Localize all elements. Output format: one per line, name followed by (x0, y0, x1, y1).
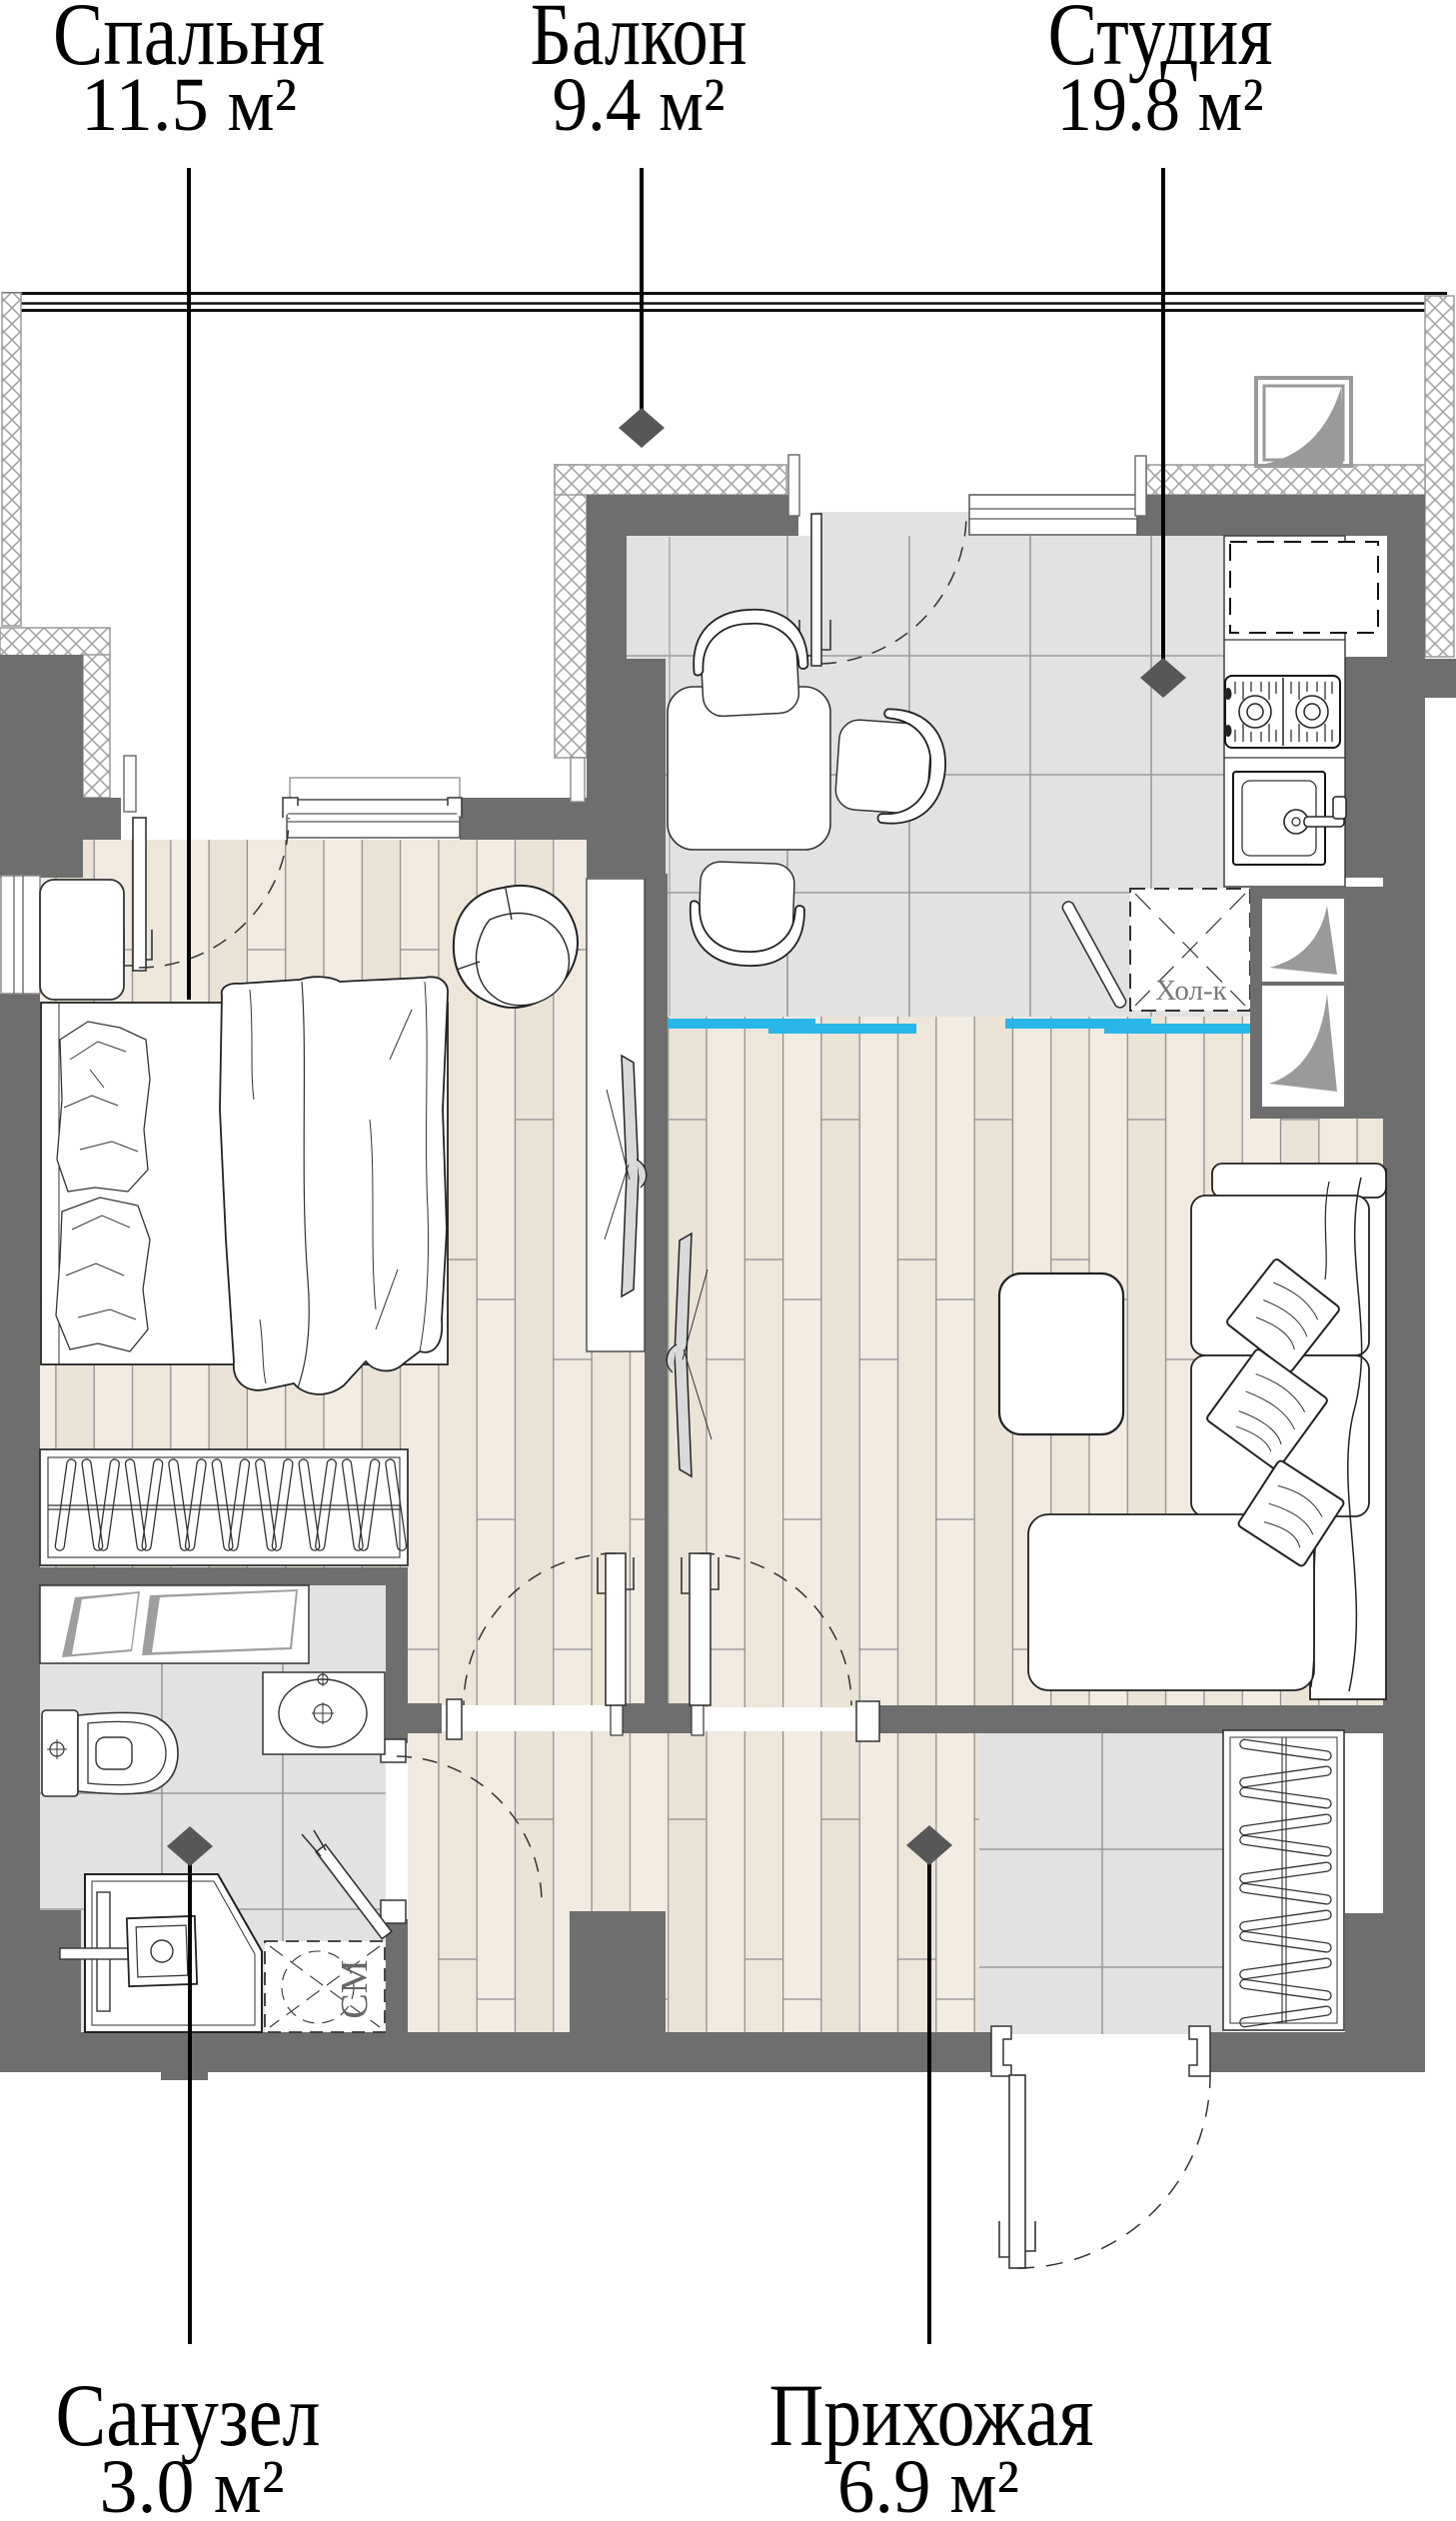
svg-text:19.8 м²: 19.8 м² (1057, 63, 1264, 147)
svg-text:3.0 м²: 3.0 м² (100, 2445, 285, 2521)
svg-text:11.5 м²: 11.5 м² (81, 63, 297, 147)
svg-text:Хол-к: Хол-к (1155, 975, 1227, 1007)
svg-text:6.9 м²: 6.9 м² (837, 2445, 1019, 2521)
svg-text:СМ: СМ (334, 1959, 376, 2018)
svg-text:9.4 м²: 9.4 м² (553, 63, 726, 147)
